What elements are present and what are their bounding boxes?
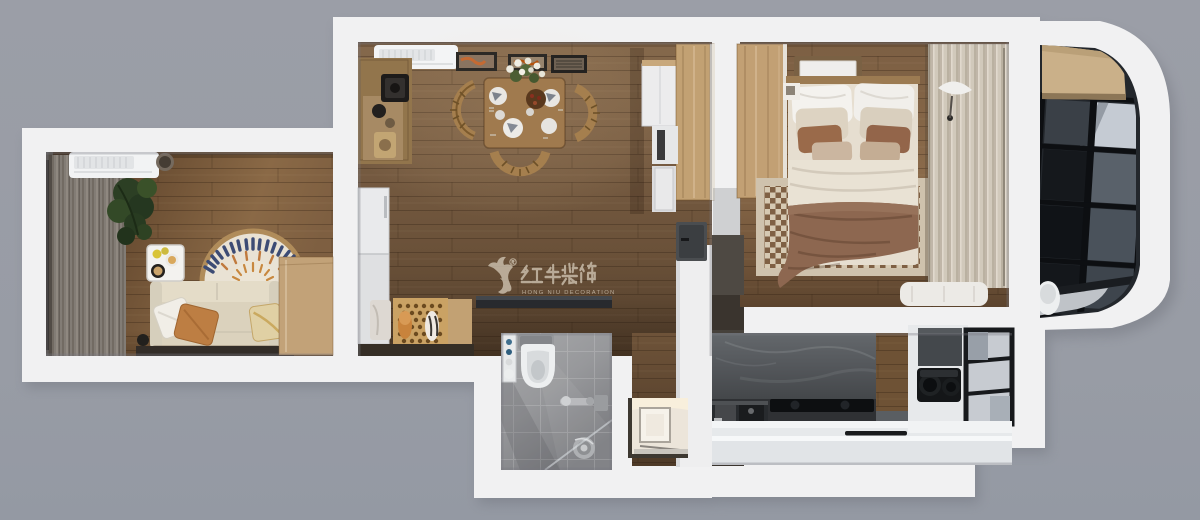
svg-text:HONG NIU DECORATION: HONG NIU DECORATION [522, 290, 616, 296]
